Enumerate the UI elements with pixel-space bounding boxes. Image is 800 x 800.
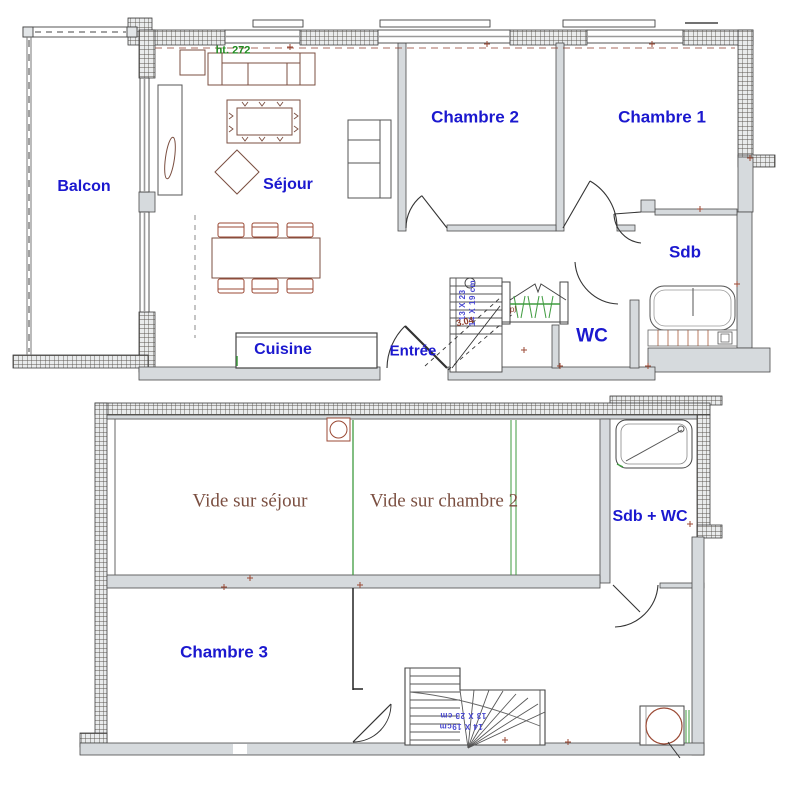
room-label-chambre1: Chambre 1 [618,109,706,126]
room-label-vide-chambre2: Vide sur chambre 2 [370,492,518,511]
stair2-dimension-2: 13 X 23 cm [440,711,486,719]
room-label-entree: Entrée [390,344,437,359]
room-label-cuisine: Cuisine [254,342,312,358]
floor-plan-page: Balcon Séjour Chambre 2 Chambre 1 Sdb WC… [0,0,800,800]
closet-abbrev: pl [510,306,516,314]
ceiling-height-note: ht. 272 [216,46,251,57]
room-label-chambre3: Chambre 3 [180,644,268,661]
room-label-wc: WC [576,327,608,346]
room-label-chambre2: Chambre 2 [431,109,519,126]
room-label-sdb-wc: Sdb + WC [612,509,687,525]
room-label-sejour: Séjour [263,177,313,193]
room-label-sdb: Sdb [669,244,701,261]
floor-plan-labels: Balcon Séjour Chambre 2 Chambre 1 Sdb WC… [0,0,800,800]
stair2-dimension-1: 14 X 19cm [439,722,483,730]
room-label-vide-sejour: Vide sur séjour [193,492,308,511]
stair-height-note: 3.04 [455,316,474,328]
room-label-balcon: Balcon [57,179,110,195]
